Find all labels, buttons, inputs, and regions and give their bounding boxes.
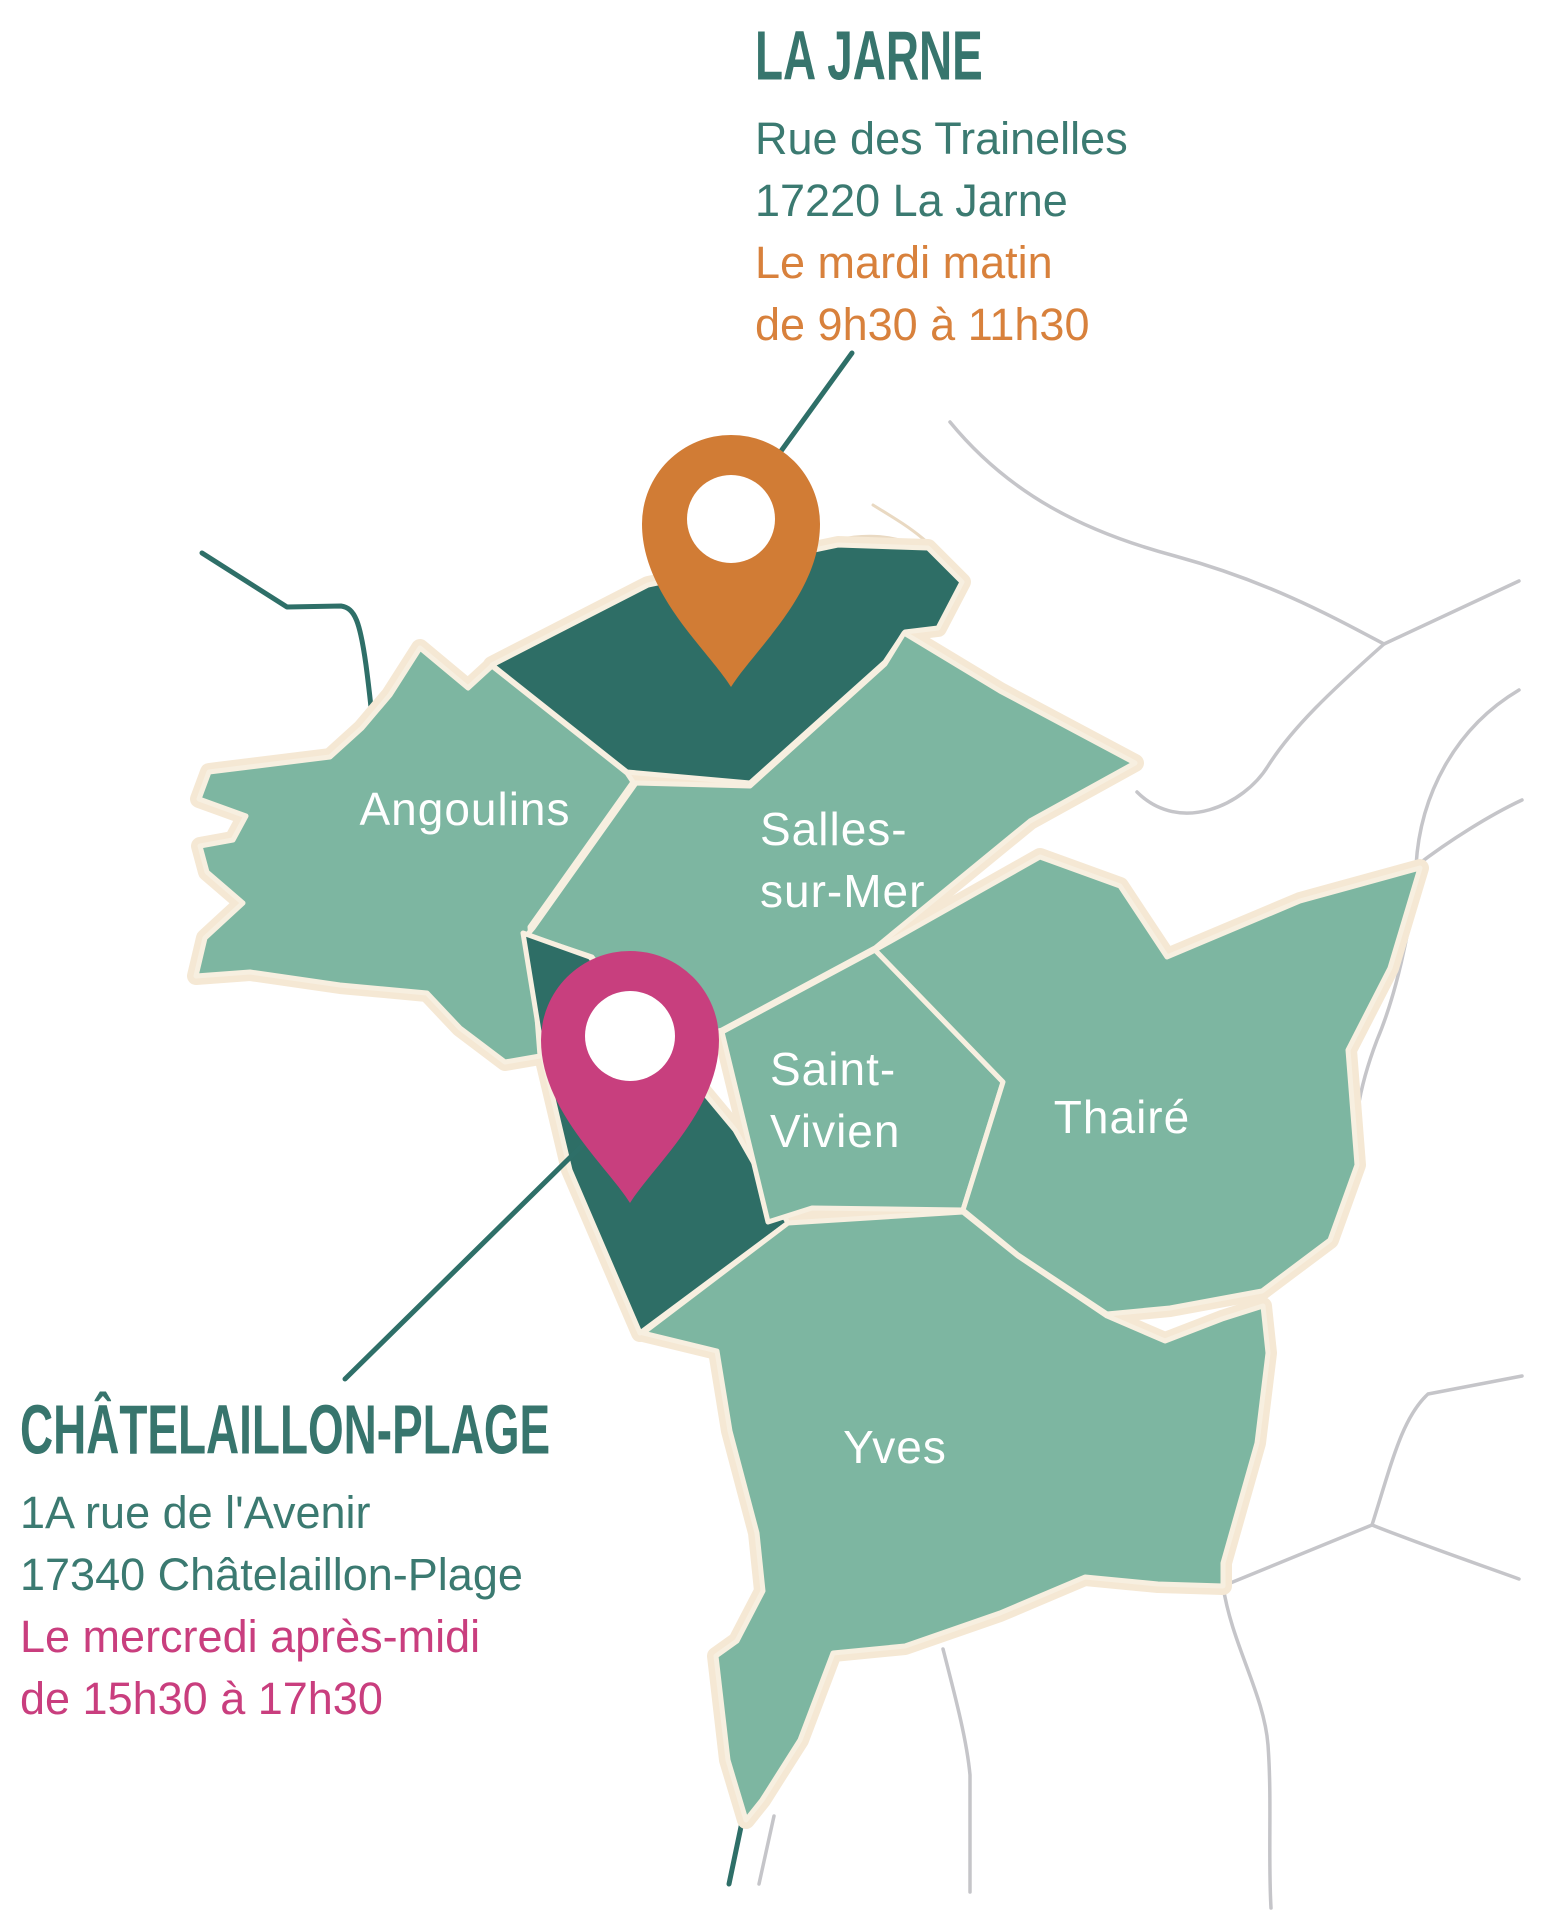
- road-gray-southeast-junction: [1223, 1376, 1522, 1908]
- map-label-salles-line1: Salles-: [760, 798, 925, 860]
- map-label-salles-line2: sur-Mer: [760, 860, 925, 922]
- infographic-map-poster: LA JARNE Rue des Trainelles 17220 La Jar…: [0, 0, 1550, 1921]
- road-gray-south: [943, 1649, 970, 1892]
- la-jarne-title: LA JARNE: [755, 28, 1128, 94]
- la-jarne-address-line2: 17220 La Jarne: [755, 170, 1128, 232]
- chatelaillon-address-line2: 17340 Châtelaillon-Plage: [20, 1544, 736, 1606]
- road-gray-northeast-branch: [1137, 644, 1384, 813]
- chatelaillon-address-line1: 1A rue de l'Avenir: [20, 1482, 736, 1544]
- leader-line-chatelaillon: [345, 1131, 597, 1379]
- pin-hole-chatelaillon: [585, 991, 675, 1081]
- road-gray-northeast-loop: [950, 422, 1519, 644]
- chatelaillon-info-block: CHÂTELAILLON-PLAGE 1A rue de l'Avenir 17…: [20, 1402, 736, 1730]
- la-jarne-address-line1: Rue des Trainelles: [755, 108, 1128, 170]
- railway-teal-south: [729, 1822, 742, 1884]
- leader-line-la-jarne: [776, 353, 852, 458]
- chatelaillon-schedule-line1: Le mercredi après-midi: [20, 1606, 736, 1668]
- la-jarne-schedule-line1: Le mardi matin: [755, 232, 1128, 294]
- map-label-angoulins: Angoulins: [359, 778, 570, 840]
- map-label-yves: Yves: [843, 1416, 947, 1478]
- la-jarne-info-block: LA JARNE Rue des Trainelles 17220 La Jar…: [755, 28, 1128, 356]
- road-gray-east-corner: [1416, 800, 1522, 866]
- pin-hole-la-jarne: [687, 475, 775, 563]
- map-label-saint-vivien-line1: Saint-: [770, 1038, 900, 1100]
- map-label-salles-sur-mer: Salles- sur-Mer: [760, 798, 925, 922]
- map-label-thaire: Thairé: [1054, 1086, 1190, 1148]
- map-label-saint-vivien: Saint- Vivien: [770, 1038, 900, 1162]
- chatelaillon-title: CHÂTELAILLON-PLAGE: [20, 1402, 736, 1468]
- la-jarne-schedule-line2: de 9h30 à 11h30: [755, 294, 1128, 356]
- map-label-saint-vivien-line2: Vivien: [770, 1100, 900, 1162]
- road-gray-south-short: [759, 1816, 774, 1884]
- chatelaillon-schedule-line2: de 15h30 à 17h30: [20, 1668, 736, 1730]
